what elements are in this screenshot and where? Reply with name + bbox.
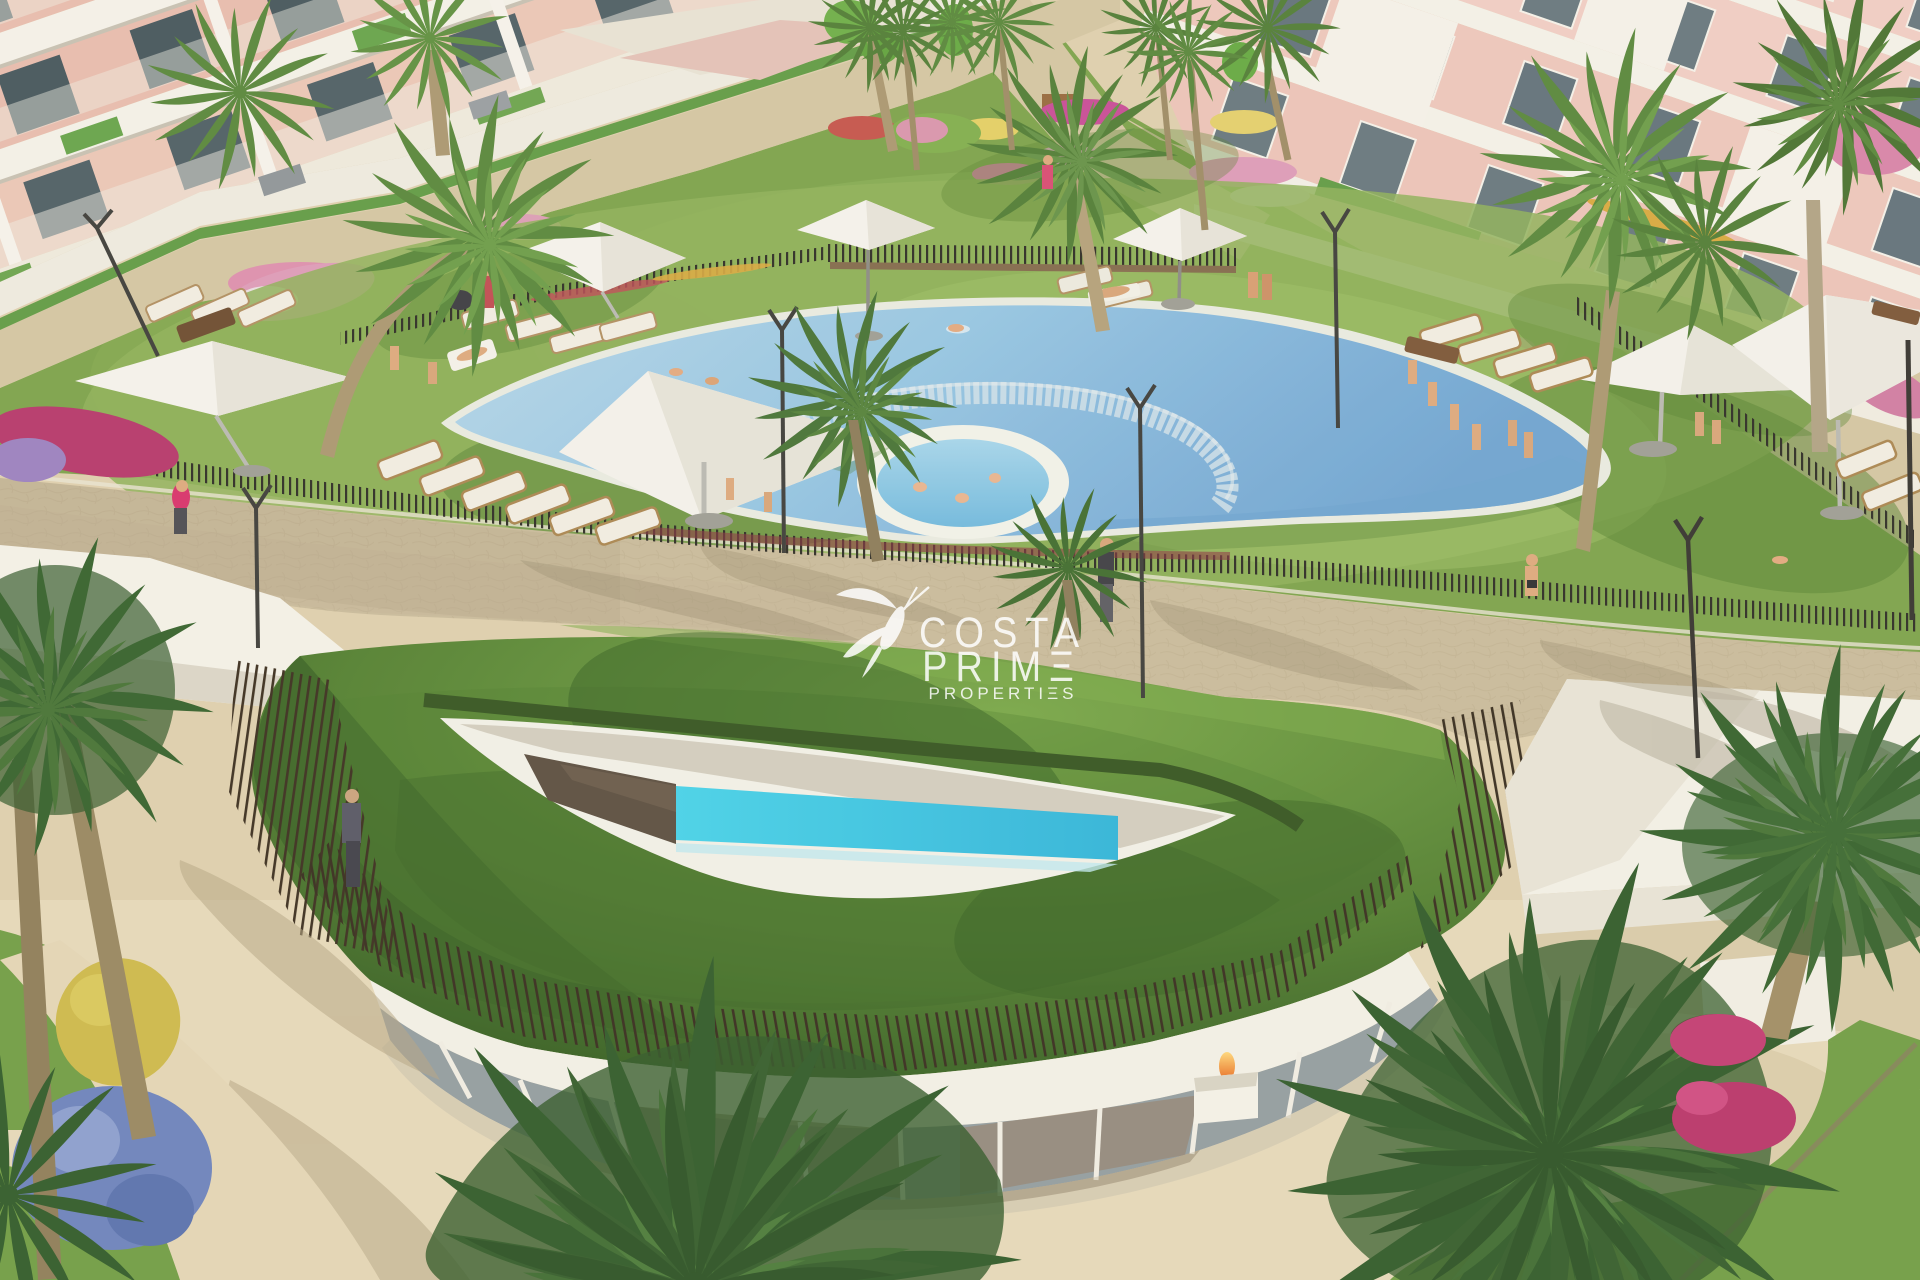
svg-text:PROPERTIΞS: PROPERTIΞS [929,684,1078,703]
